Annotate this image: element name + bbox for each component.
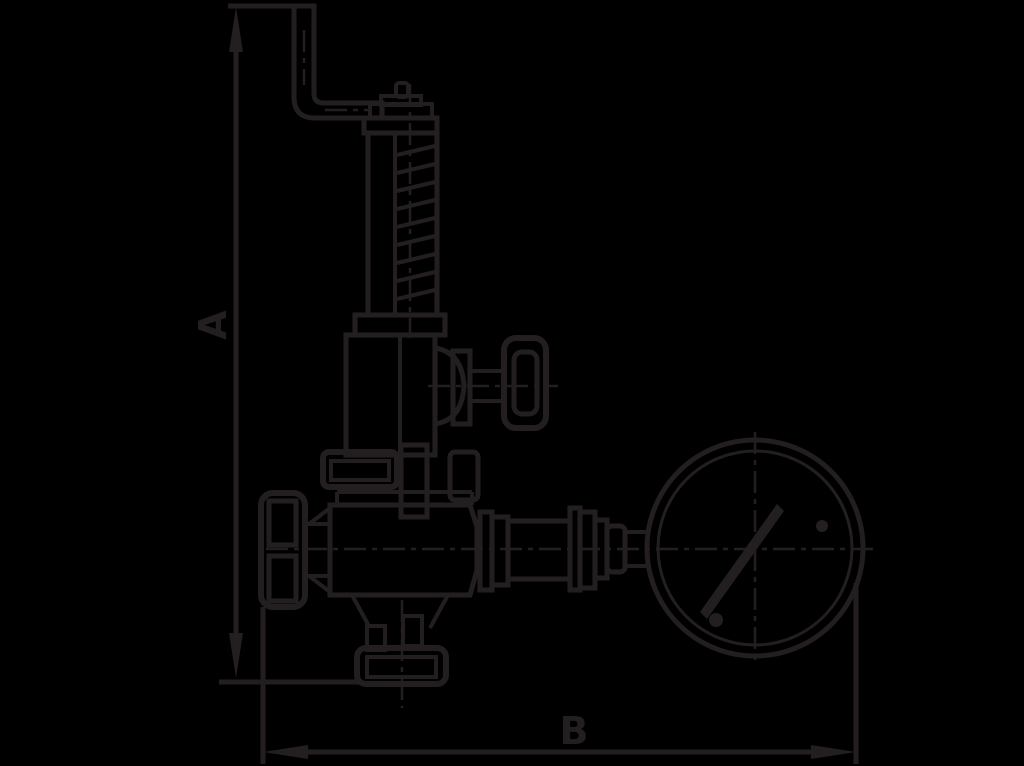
lever-arm [294, 6, 382, 118]
main-body [305, 492, 477, 595]
gauge-dial-screw [816, 520, 828, 532]
test-valve [435, 338, 546, 428]
dimension-a: A [191, 6, 362, 682]
arrow-up-icon [229, 7, 243, 52]
outlet-neck-right [403, 616, 422, 646]
gauge-needle-icon [700, 504, 784, 619]
test-handwheel-hub [514, 352, 537, 414]
arrow-down-icon [229, 633, 243, 678]
valve-technical-drawing: A B [0, 0, 1024, 766]
arrow-right-icon [811, 745, 856, 759]
dimension-a-label: A [191, 310, 235, 340]
centerlines [266, 84, 878, 708]
upper-body-housing [346, 335, 435, 455]
dimension-b-label: B [560, 709, 589, 753]
outlet-flange [352, 595, 448, 684]
lever-bracket-outline [294, 6, 382, 118]
upper-body [346, 335, 435, 455]
gauge-pipe [480, 508, 650, 590]
spring-bonnet [355, 133, 445, 335]
arrow-left-icon [263, 745, 308, 759]
cap-and-stem [364, 83, 437, 133]
union-nut-inner [331, 461, 389, 480]
diagram-canvas: A B [0, 0, 1024, 766]
side-handwheel-spoke-top [269, 501, 296, 545]
dimension-b: B [263, 583, 856, 764]
bonnet-bottom-flange [355, 315, 445, 335]
spring-coils [397, 146, 435, 299]
side-handwheel-spoke-bottom [269, 556, 296, 601]
gauge-stop-pin [709, 613, 723, 627]
